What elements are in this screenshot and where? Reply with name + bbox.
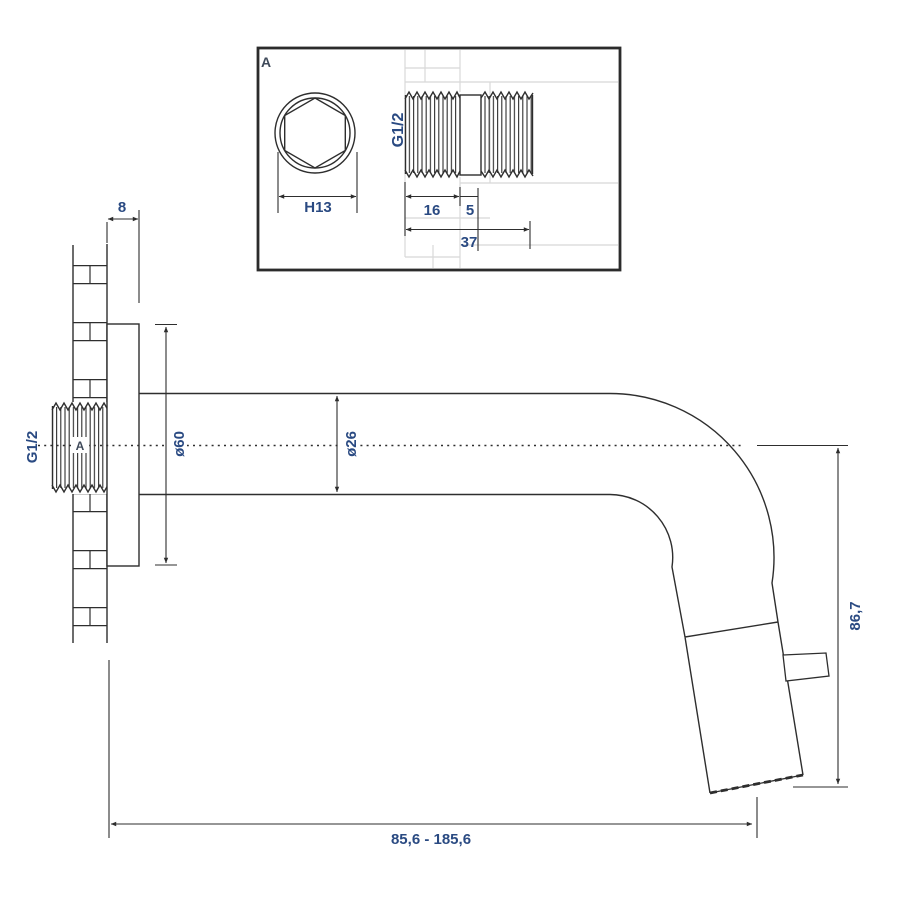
wall-thread-size: G1/2	[24, 431, 41, 464]
spout-lower-section	[685, 622, 803, 793]
detail-ref-label: A	[76, 439, 85, 453]
escutcheon-plate	[107, 324, 139, 566]
spout-reach-value: 85,6 - 185,6	[391, 831, 471, 848]
thread-hatch-left	[406, 96, 459, 173]
detail-box-label: A	[261, 54, 271, 70]
main-view: 8 ø60 ø26 86,7 85,6 - 185,6 G1/2	[24, 199, 864, 848]
spout-outer-edge	[139, 394, 778, 623]
spout-diameter-value: ø26	[343, 431, 360, 457]
technical-drawing: A H13 G1/2 16 5	[0, 0, 900, 900]
dim-plate-thickness: 8	[107, 199, 139, 303]
thread-hatch-right	[482, 96, 532, 173]
aerator-knob	[783, 653, 829, 681]
dim-plate-diameter: ø60	[155, 325, 188, 566]
dim-spout-diameter: ø26	[337, 396, 360, 492]
dim-spout-reach: 85,6 - 185,6	[109, 660, 757, 848]
thread-length-value: 16	[424, 202, 441, 219]
plate-diameter-value: ø60	[171, 431, 188, 457]
nipple-thread-size: G1/2	[390, 113, 407, 148]
collar-length-value: 5	[466, 202, 474, 219]
spout-body	[139, 394, 829, 794]
nipple-side-view	[405, 92, 533, 177]
spout-inner-edge	[139, 495, 685, 638]
plate-thickness-value: 8	[118, 199, 126, 216]
detail-view-box: A H13 G1/2 16 5	[258, 48, 620, 270]
nipple-collar	[460, 95, 481, 175]
hex-width-value: H13	[304, 199, 332, 216]
spout-height-value: 86,7	[847, 601, 864, 630]
total-length-value: 37	[461, 234, 478, 251]
